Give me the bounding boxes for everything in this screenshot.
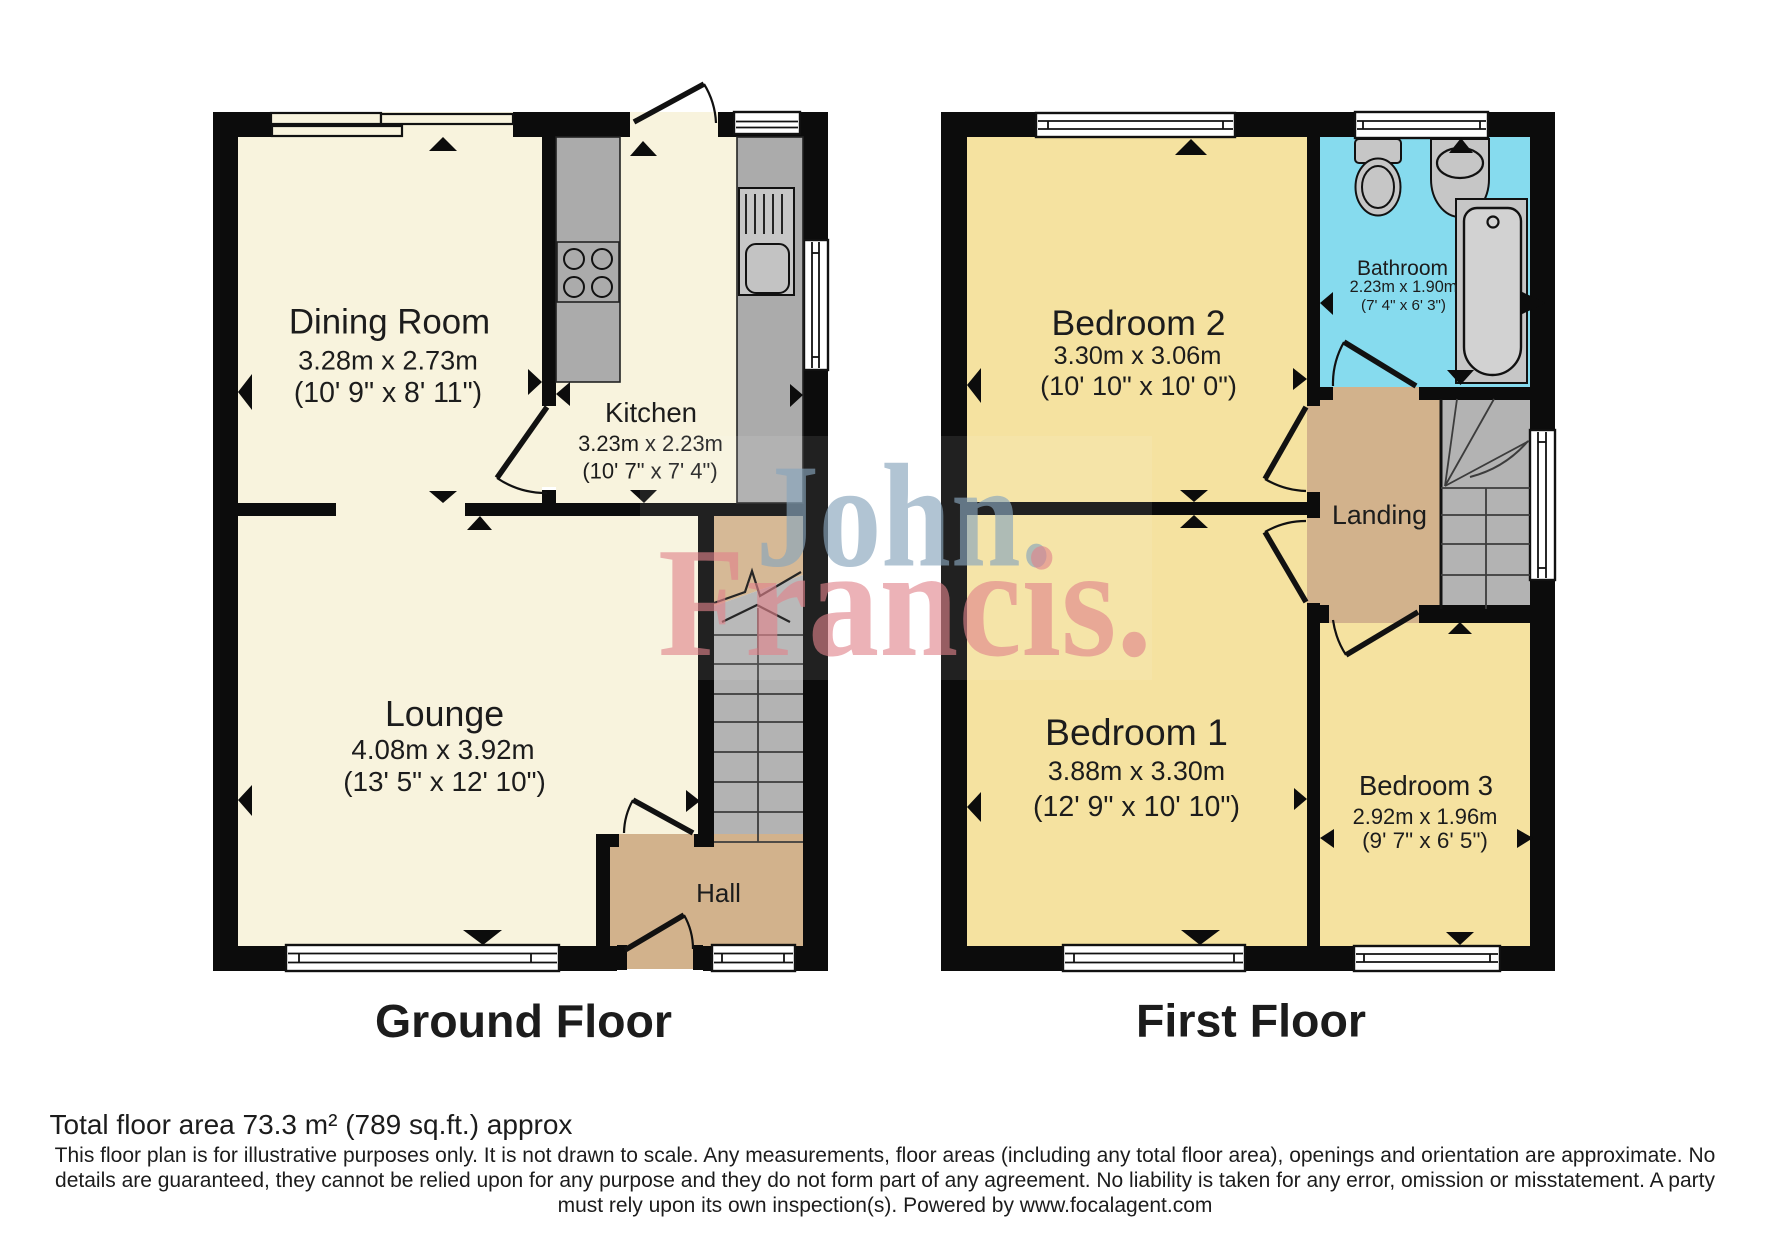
- svg-text:3.30m x 3.06m: 3.30m x 3.06m: [1054, 342, 1222, 370]
- svg-text:must rely upon its own inspect: must rely upon its own inspection(s). Po…: [558, 1194, 1213, 1217]
- svg-text:Francis.: Francis.: [658, 515, 1152, 689]
- svg-text:Dining Room: Dining Room: [289, 303, 490, 342]
- svg-text:(10' 9" x 8' 11"): (10' 9" x 8' 11"): [294, 377, 482, 409]
- svg-text:Lounge: Lounge: [385, 694, 504, 734]
- svg-text:Bedroom 1: Bedroom 1: [1045, 711, 1228, 753]
- svg-text:Hall: Hall: [696, 878, 741, 908]
- svg-text:(10' 10" x 10' 0"): (10' 10" x 10' 0"): [1040, 370, 1237, 401]
- svg-text:(9' 7" x 6' 5"): (9' 7" x 6' 5"): [1362, 828, 1488, 853]
- svg-text:2.23m x 1.90m: 2.23m x 1.90m: [1350, 278, 1458, 296]
- svg-text:Landing: Landing: [1332, 500, 1427, 530]
- svg-text:Kitchen: Kitchen: [605, 397, 697, 428]
- svg-text:Total floor area 73.3 m² (789: Total floor area 73.3 m² (789 sq.ft.) ap…: [50, 1109, 573, 1140]
- svg-text:3.88m x 3.30m: 3.88m x 3.30m: [1048, 756, 1225, 786]
- svg-text:Ground Floor: Ground Floor: [375, 995, 672, 1047]
- svg-text:Bedroom 2: Bedroom 2: [1051, 303, 1225, 343]
- svg-text:(13' 5" x 12' 10"): (13' 5" x 12' 10"): [343, 766, 546, 797]
- svg-text:Bathroom: Bathroom: [1357, 257, 1448, 280]
- svg-text:(12' 9" x 10' 10"): (12' 9" x 10' 10"): [1033, 791, 1240, 823]
- svg-text:4.08m x 3.92m: 4.08m x 3.92m: [351, 734, 534, 765]
- svg-text:First Floor: First Floor: [1136, 995, 1366, 1047]
- svg-text:(7' 4" x 6' 3"): (7' 4" x 6' 3"): [1361, 297, 1446, 314]
- svg-text:details are guaranteed, they c: details are guaranteed, they cannot be r…: [55, 1169, 1715, 1192]
- svg-text:This floor plan is for illustr: This floor plan is for illustrative purp…: [55, 1144, 1716, 1167]
- svg-text:2.92m x 1.96m: 2.92m x 1.96m: [1353, 804, 1498, 829]
- svg-text:Bedroom 3: Bedroom 3: [1359, 770, 1493, 801]
- svg-text:3.28m x 2.73m: 3.28m x 2.73m: [298, 345, 478, 376]
